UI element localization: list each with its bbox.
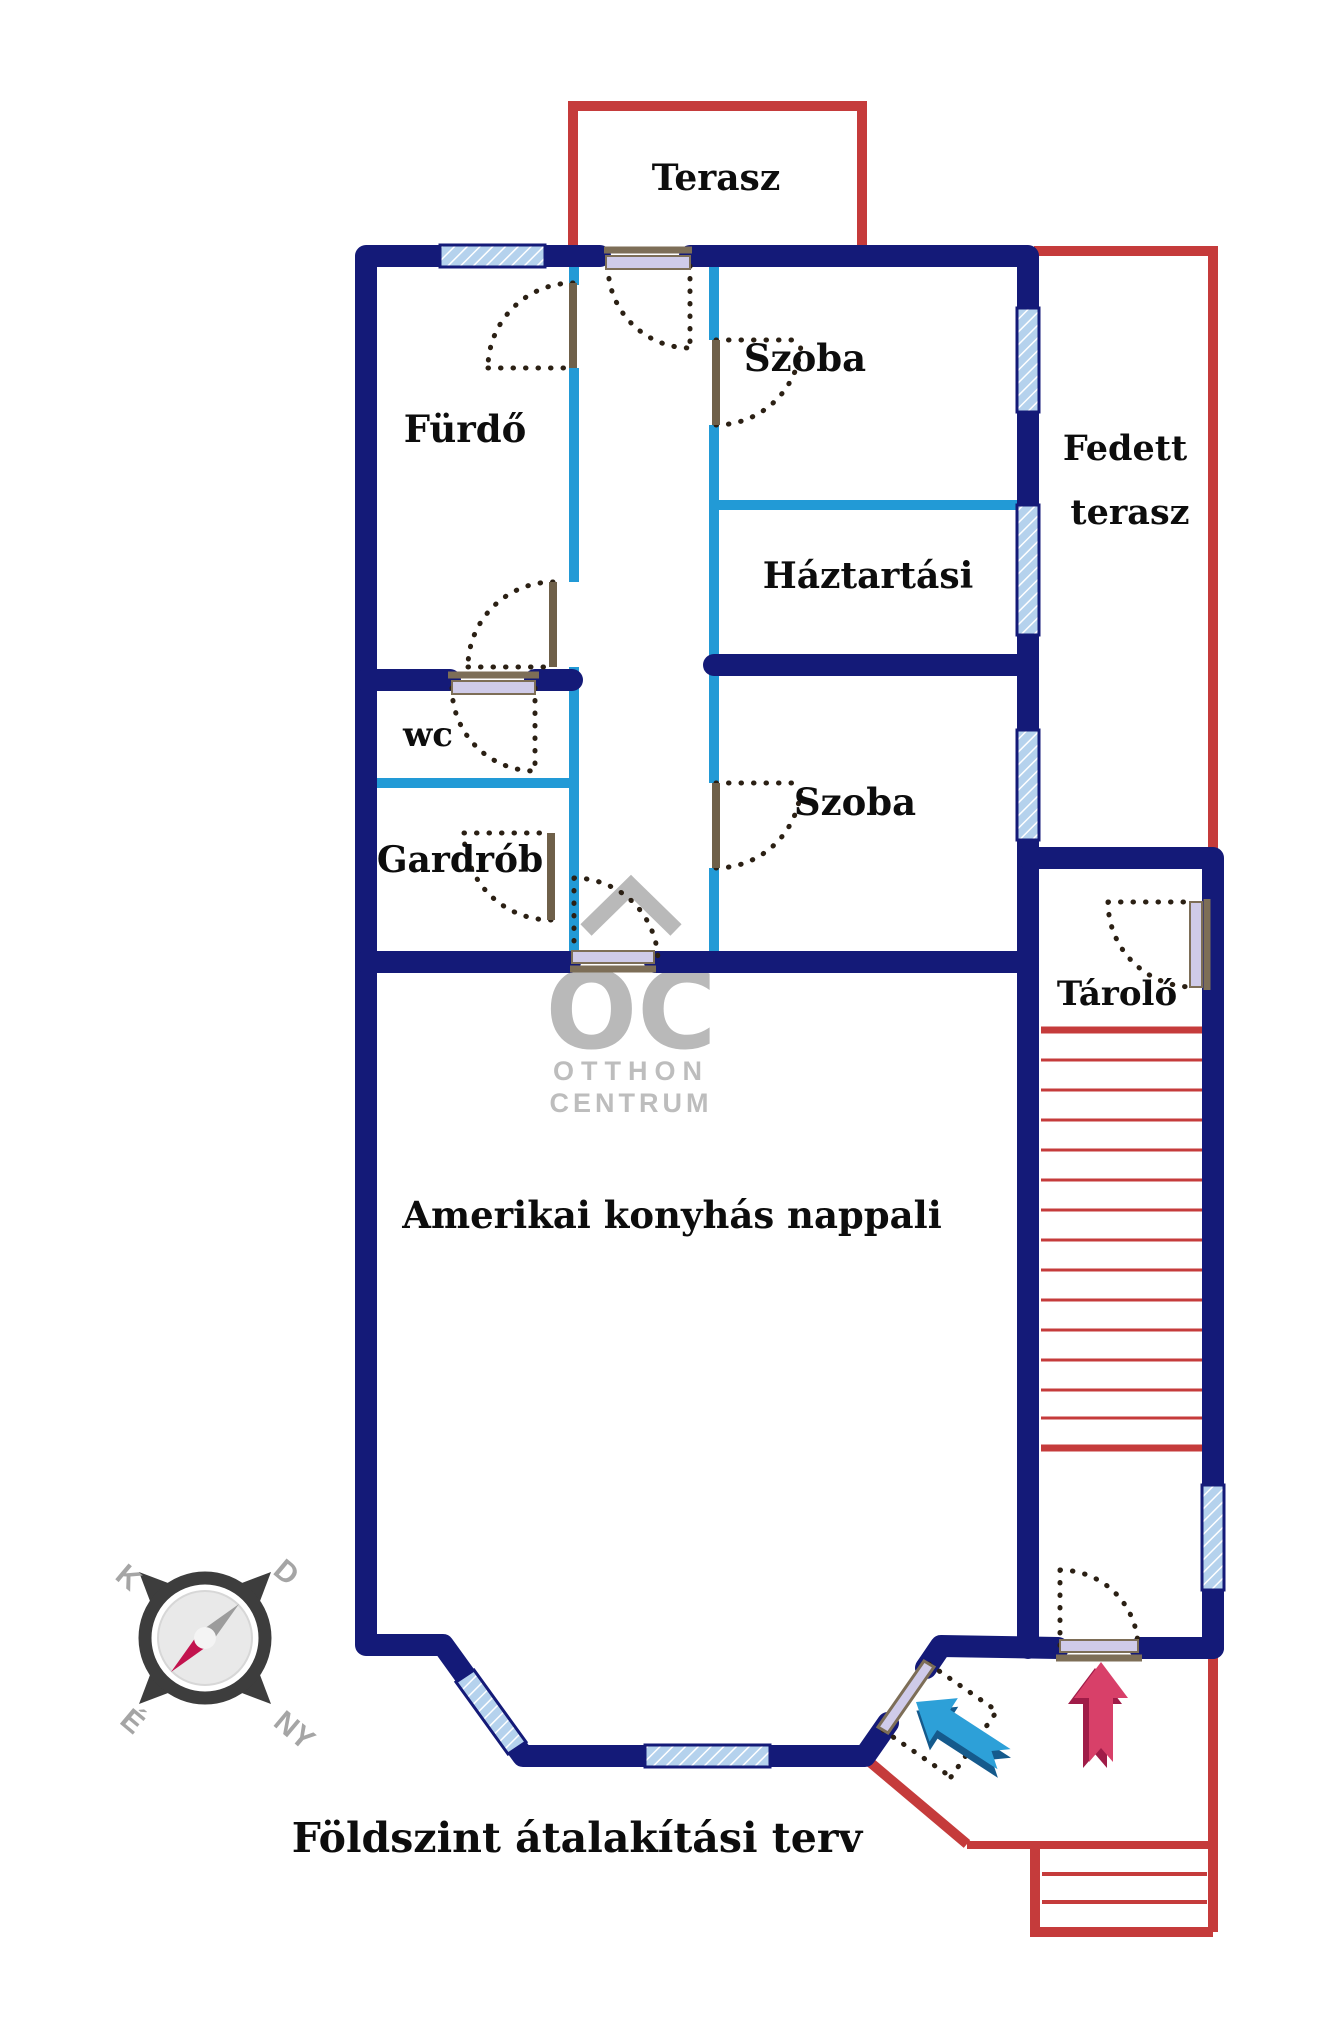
label-fedett-line2: terasz xyxy=(1070,492,1189,533)
red-arrow-body xyxy=(1074,1662,1128,1762)
hall-bottom-wall xyxy=(926,1646,1058,1668)
door-swing-hall xyxy=(1060,1570,1138,1648)
door-swing-wc xyxy=(452,688,535,771)
label-gardrob: Gardrób xyxy=(377,839,543,881)
window xyxy=(1017,505,1039,635)
room-labels: Terasz Fürdő Szoba Háztartási Fedett ter… xyxy=(292,157,1190,1862)
compass-label-north: É xyxy=(114,1702,151,1741)
compass-label-west: NY xyxy=(268,1705,321,1757)
porch-border xyxy=(1035,1845,1213,1932)
window xyxy=(440,245,545,267)
label-fedett-line1: Fedett xyxy=(1063,428,1187,469)
logo-line2: CENTRUM xyxy=(550,1088,713,1118)
label-szoba2: Szoba xyxy=(794,780,916,824)
label-furdo: Fürdő xyxy=(404,407,527,451)
label-nappali: Amerikai konyhás nappali xyxy=(401,1193,942,1237)
label-wc: wc xyxy=(402,715,453,755)
door-swing-szoba2 xyxy=(716,783,801,868)
compass-label-east: K xyxy=(109,1558,147,1597)
window xyxy=(1017,730,1039,840)
red-arrow xyxy=(1068,1662,1128,1768)
logo-roof-icon xyxy=(586,886,676,930)
window xyxy=(1202,1485,1224,1590)
compass-hub xyxy=(194,1627,216,1649)
window xyxy=(1017,308,1039,412)
blue-arrow xyxy=(898,1680,1022,1789)
plan-title: Földszint átalakítási terv xyxy=(292,1814,864,1862)
porch-diagonal xyxy=(865,1758,967,1844)
direction-arrows xyxy=(898,1662,1128,1790)
door-swing-terasz-corridor xyxy=(608,266,690,348)
window-bay xyxy=(645,1745,770,1767)
door-leaf-wc xyxy=(452,681,535,694)
logo-line1: OTTHON xyxy=(553,1056,709,1086)
floor-plan: OC OTTHON CENTRUM xyxy=(0,0,1320,2020)
label-tarolo: Tároló xyxy=(1057,974,1177,1014)
label-haztartasi: Háztartási xyxy=(763,555,974,597)
compass-label-south: D xyxy=(267,1553,305,1592)
window-bay-diagonal xyxy=(456,1670,526,1754)
door-leaf-tarolo xyxy=(1190,902,1202,987)
label-terasz: Terasz xyxy=(652,157,781,199)
staircase xyxy=(1041,1030,1202,1448)
door-leaf-terasz-corridor xyxy=(606,256,690,269)
compass: K D É NY xyxy=(109,1553,320,1757)
door-leaf-corridor-nappali xyxy=(572,951,654,963)
door-swing-furdo-upper xyxy=(488,283,573,368)
door-leaf-hall xyxy=(1060,1640,1138,1652)
label-szoba1: Szoba xyxy=(744,336,866,380)
fedett-terasz-outline xyxy=(1034,251,1213,853)
door-swing-furdo-lower xyxy=(468,582,553,667)
